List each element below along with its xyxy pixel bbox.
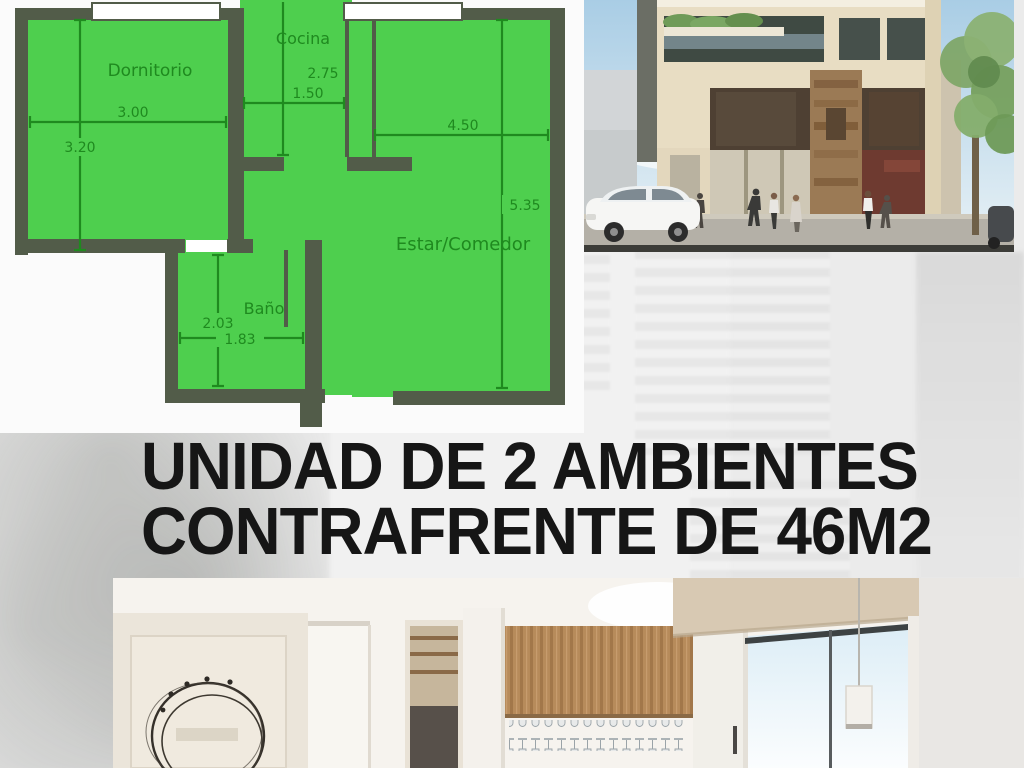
hanging-wine-glasses: [509, 720, 687, 751]
room-label-cocina: Cocina: [276, 29, 330, 48]
doorway-opening: [405, 620, 463, 768]
room-label-dormitorio: Dornitorio: [108, 61, 193, 81]
faded-shutter-window: [635, 250, 830, 455]
dim-cocina-depth: 2.75: [307, 66, 338, 82]
interior-door: [308, 621, 371, 768]
kitchen-cabinets: [505, 626, 693, 751]
dim-bano-width: 1.83: [224, 332, 255, 348]
headline-line-2: CONTRAFRENTE DE 46M2: [141, 499, 932, 564]
dim-cocina-width: 1.50: [292, 86, 323, 102]
room-label-bano: Baño: [244, 299, 285, 318]
dim-bano-depth: 2.03: [202, 316, 233, 332]
floor-plan: Dornitorio Cocina Estar/Comedor Baño 3.0…: [0, 0, 584, 433]
wall-art-wreath: [113, 613, 308, 768]
building: [637, 0, 961, 225]
interior-kitchen-photo: [113, 578, 919, 768]
building-exterior-photo: [584, 0, 1014, 252]
faded-right-background: [916, 252, 1024, 582]
dim-dormitorio-width: 3.00: [117, 105, 148, 121]
dim-estar-depth: 5.35: [509, 198, 540, 214]
fridge-unit: [693, 616, 748, 768]
dim-dormitorio-depth: 3.20: [64, 140, 95, 156]
headline-line-1: UNIDAD DE 2 AMBIENTES: [141, 434, 932, 499]
room-label-estar-comedor: Estar/Comedor: [396, 234, 531, 255]
dim-estar-width: 4.50: [447, 118, 478, 134]
listing-poster: Dornitorio Cocina Estar/Comedor Baño 3.0…: [0, 0, 1024, 768]
headline: UNIDAD DE 2 AMBIENTES CONTRAFRENTE DE 46…: [141, 434, 932, 564]
faded-bottom-right-background: [916, 578, 1024, 768]
